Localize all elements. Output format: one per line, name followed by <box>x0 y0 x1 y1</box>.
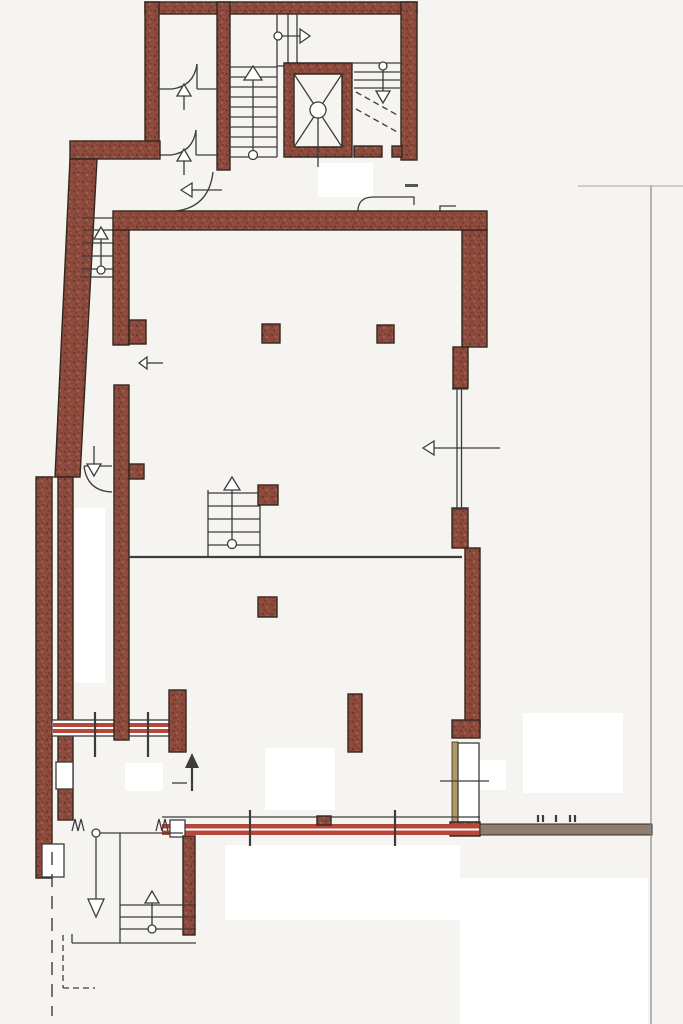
stair-start-circle <box>97 266 105 274</box>
right-wall-foot <box>452 720 480 738</box>
hall-left-pier <box>113 230 129 345</box>
elevator-center-circle <box>310 102 326 118</box>
column <box>262 324 280 343</box>
porch-side-wall <box>183 836 195 935</box>
door-pivot-circle <box>92 829 100 837</box>
whiteout-patch <box>460 878 648 1024</box>
hall-top-wall <box>113 211 487 230</box>
stair-start-circle <box>379 62 387 70</box>
core-left-wall <box>145 2 159 154</box>
wall-stub <box>354 146 382 157</box>
hall-right-wall-upper <box>462 230 487 347</box>
right-wall-pier <box>453 347 468 388</box>
right-wall-pier <box>452 508 468 548</box>
wall-column-bump <box>129 464 144 479</box>
window-band-frame <box>52 720 170 736</box>
column <box>258 485 278 505</box>
tall-pillar <box>348 694 362 752</box>
wall-niche <box>42 844 64 877</box>
storefront-post <box>317 816 331 825</box>
stair-start-circle <box>148 925 156 933</box>
sidewalk-band <box>480 824 652 835</box>
wall-column-bump <box>129 320 146 344</box>
whiteout-patch <box>318 163 373 197</box>
window-band-glass <box>53 729 169 733</box>
whiteout-patch <box>75 508 105 683</box>
threshold-square <box>170 820 185 837</box>
floor-plan-drawing <box>0 0 683 1024</box>
corridor-party-wall <box>114 385 129 740</box>
whiteout-patch <box>225 845 460 920</box>
whiteout-patch <box>523 713 623 793</box>
stair-start-circle <box>249 151 258 160</box>
wall-niche <box>56 762 73 789</box>
column <box>258 597 277 617</box>
window-band-glass <box>53 723 169 727</box>
side-door <box>458 743 479 822</box>
west-wall-outer-band <box>36 477 52 878</box>
wall-stub <box>392 146 402 157</box>
door-jamb-strip <box>452 742 458 822</box>
core-right-wall <box>401 2 417 160</box>
whiteout-patch <box>478 760 506 790</box>
entry-pier <box>169 690 186 752</box>
column <box>377 325 394 343</box>
whiteout-patch <box>125 763 163 791</box>
pencil-mark <box>405 184 418 187</box>
floor-plan-page <box>0 0 683 1024</box>
core-divider-wall <box>217 2 230 170</box>
door-pivot-circle <box>274 32 282 40</box>
whiteout-patch <box>265 748 335 810</box>
west-wall-top-segment <box>70 141 160 159</box>
core-top-wall <box>145 2 417 14</box>
stair-start-circle <box>228 540 237 549</box>
hall-right-wall-lower <box>465 548 480 727</box>
